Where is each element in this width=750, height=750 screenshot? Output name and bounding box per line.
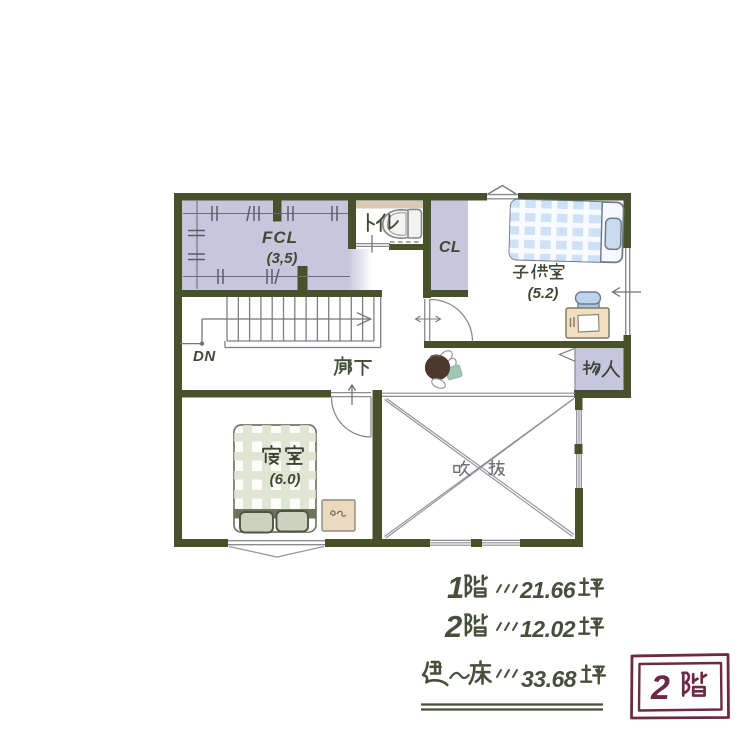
svg-text:2: 2 <box>444 609 462 644</box>
svg-text:DN: DN <box>193 348 216 365</box>
svg-text:(5.2): (5.2) <box>528 285 559 302</box>
svg-text:12.02: 12.02 <box>520 616 576 642</box>
svg-text:FCL: FCL <box>262 228 298 247</box>
svg-text:1: 1 <box>447 570 464 605</box>
svg-text:(3,5): (3,5) <box>267 250 298 267</box>
svg-text:33.68: 33.68 <box>521 666 577 692</box>
svg-text:CL: CL <box>439 239 461 256</box>
svg-text:21.66: 21.66 <box>519 577 576 603</box>
svg-text:(6.0): (6.0) <box>270 471 301 488</box>
svg-text:2: 2 <box>650 669 670 707</box>
